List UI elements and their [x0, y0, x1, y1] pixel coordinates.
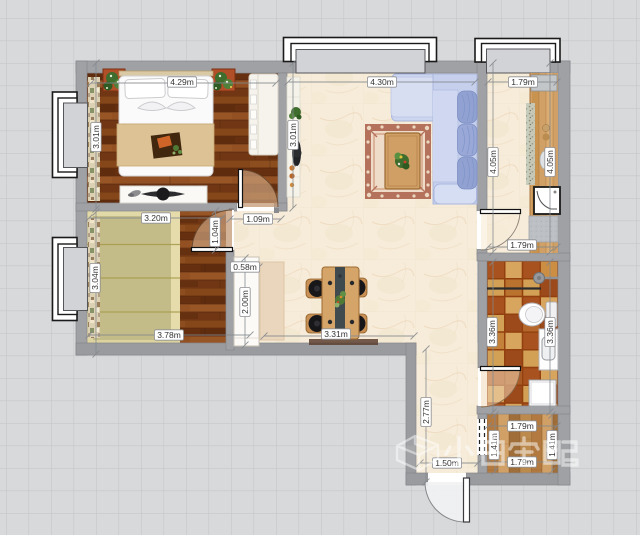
svg-text:1.09m: 1.09m — [246, 214, 270, 224]
svg-text:1.04m: 1.04m — [210, 220, 220, 244]
svg-text:4.30m: 4.30m — [370, 77, 394, 87]
svg-text:1.79m: 1.79m — [511, 77, 535, 87]
svg-text:3.01m: 3.01m — [91, 125, 101, 149]
svg-text:2.00m: 2.00m — [240, 290, 250, 314]
svg-text:0.58m: 0.58m — [233, 262, 257, 272]
svg-text:3.01m: 3.01m — [288, 123, 298, 147]
svg-text:1.79m: 1.79m — [510, 240, 534, 250]
svg-text:3.04m: 3.04m — [90, 266, 100, 290]
svg-text:4.05m: 4.05m — [545, 150, 555, 174]
svg-text:3.78m: 3.78m — [157, 330, 181, 340]
svg-text:3.36m: 3.36m — [545, 320, 555, 344]
svg-text:2.77m: 2.77m — [421, 400, 431, 424]
svg-text:4.29m: 4.29m — [170, 77, 194, 87]
svg-text:3.31m: 3.31m — [324, 329, 348, 339]
svg-text:4.05m: 4.05m — [488, 150, 498, 174]
svg-text:3.36m: 3.36m — [487, 320, 497, 344]
svg-text:1.79m: 1.79m — [510, 421, 534, 431]
svg-text:3.20m: 3.20m — [144, 213, 168, 223]
